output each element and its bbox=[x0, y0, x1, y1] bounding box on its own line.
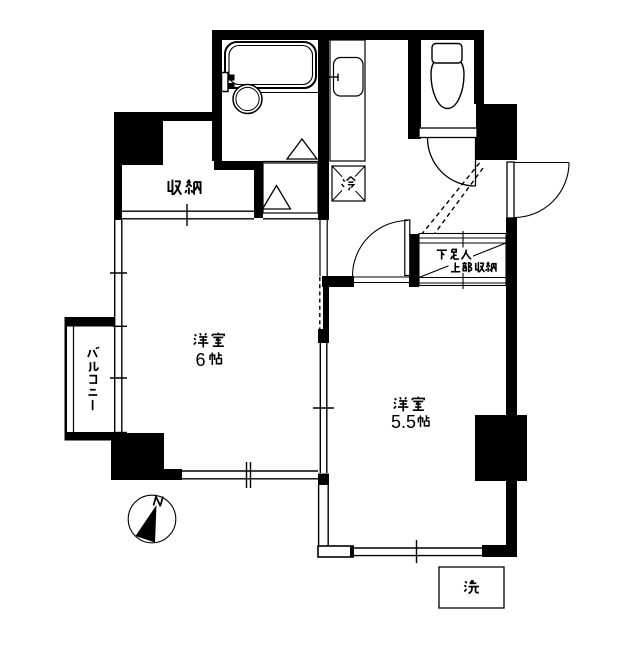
svg-text:5.5: 5.5 bbox=[391, 412, 416, 432]
svg-text:6: 6 bbox=[196, 350, 206, 370]
